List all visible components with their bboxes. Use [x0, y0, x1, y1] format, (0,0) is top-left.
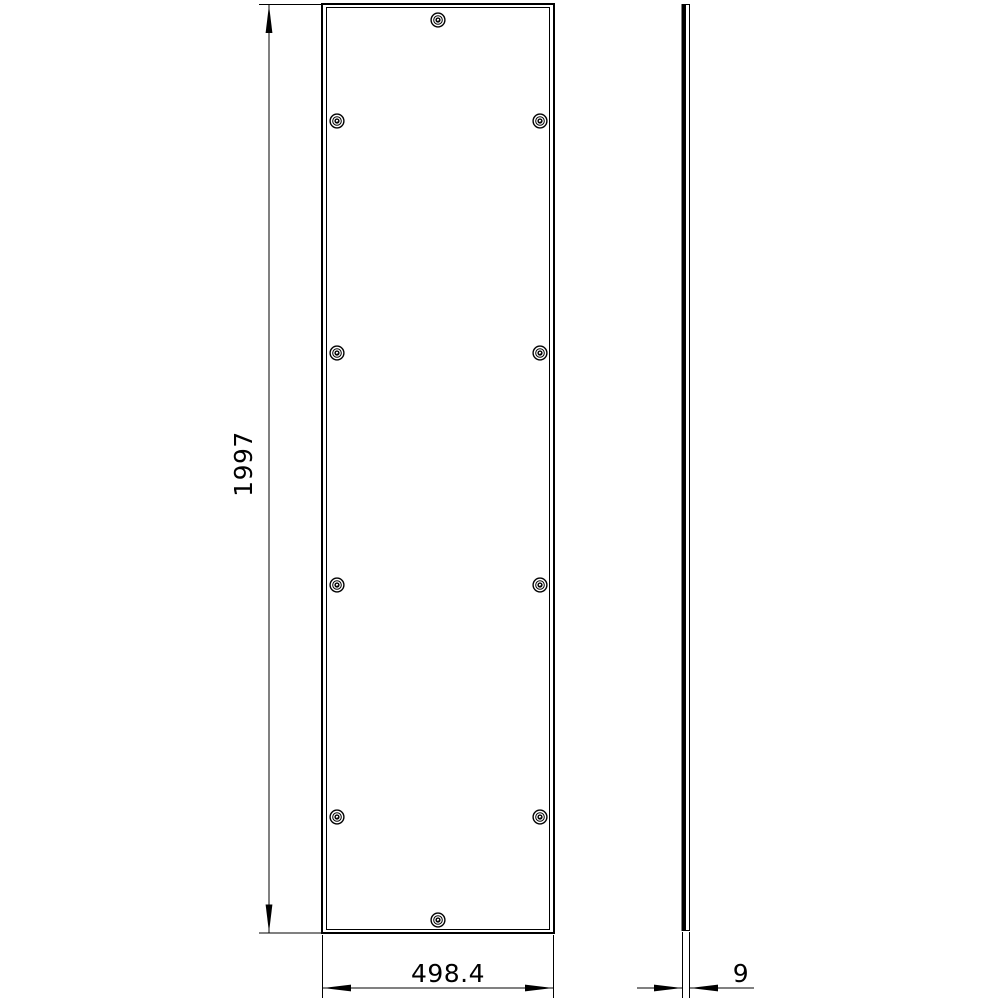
front-view-outer-edge — [322, 4, 554, 933]
screw-head-top-center — [431, 13, 445, 27]
width-dimension-label: 498.4 — [411, 959, 485, 988]
height-dimension: 1997 — [229, 5, 322, 934]
height-dimension-label: 1997 — [229, 431, 258, 497]
side-view-face-edge — [683, 5, 687, 930]
screw-head-row1-left — [330, 114, 344, 128]
screw-head-row2-right — [533, 346, 547, 360]
screw-head-row4-left — [330, 810, 344, 824]
height-dim-arrow-down-icon — [266, 905, 273, 933]
technical-drawing-canvas: 1997 498.4 9 — [0, 0, 1000, 1000]
thickness-dimension: 9 — [637, 932, 754, 998]
screw-head-bottom-center — [431, 913, 445, 927]
width-dim-arrow-right-icon — [525, 985, 553, 992]
height-dim-arrow-up-icon — [266, 5, 273, 33]
screw-head-row4-right — [533, 810, 547, 824]
width-dimension: 498.4 — [323, 935, 554, 998]
width-dim-arrow-left-icon — [323, 985, 351, 992]
screw-head-row3-left — [330, 578, 344, 592]
thickness-dimension-label: 9 — [733, 959, 749, 988]
screw-head-row2-left — [330, 346, 344, 360]
side-profile-view — [682, 5, 690, 931]
thickness-dim-arrow-left-icon — [690, 985, 718, 992]
thickness-dim-arrow-right-icon — [654, 985, 682, 992]
front-view — [322, 4, 554, 933]
screw-head-row1-right — [533, 114, 547, 128]
drawing-sheet: 1997 498.4 9 — [0, 0, 1000, 1000]
screw-head-row3-right — [533, 578, 547, 592]
